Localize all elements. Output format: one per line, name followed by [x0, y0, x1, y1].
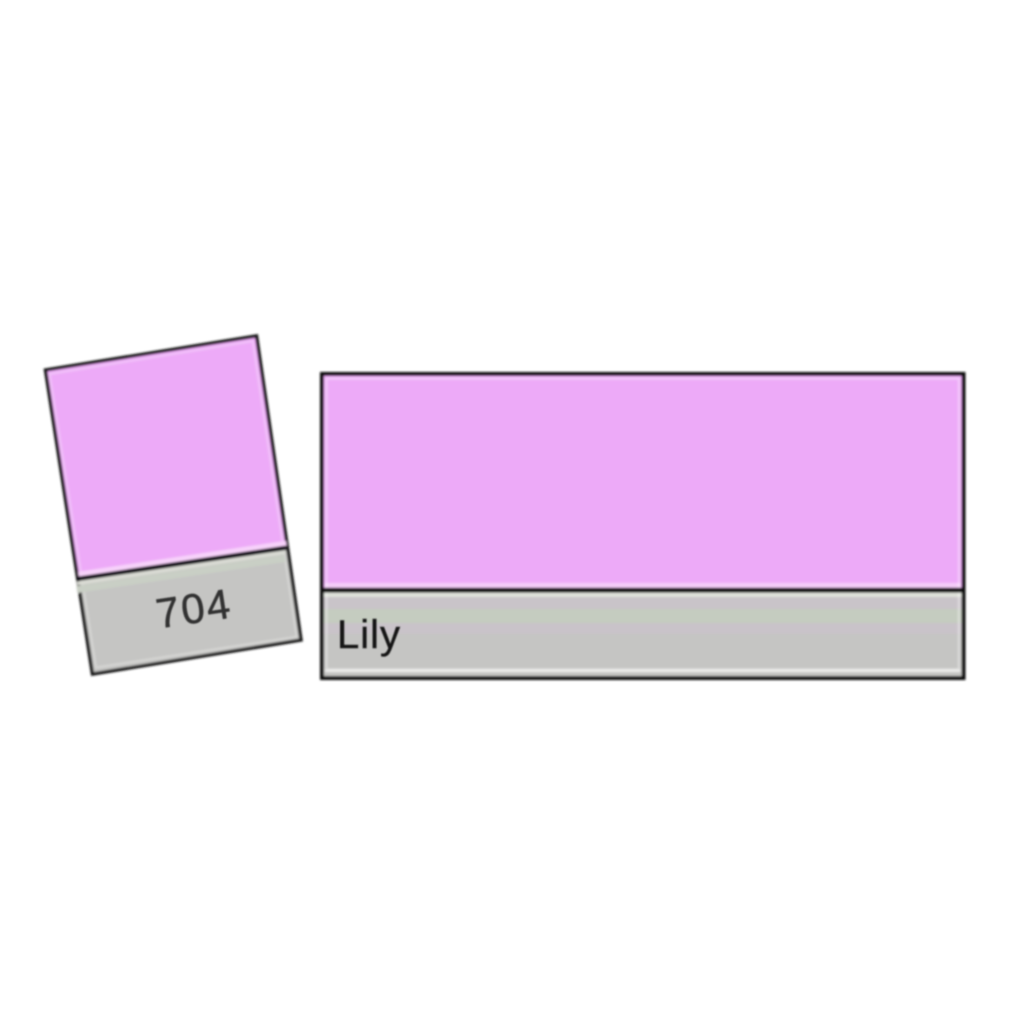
svg-text:Lily: Lily: [337, 613, 401, 657]
